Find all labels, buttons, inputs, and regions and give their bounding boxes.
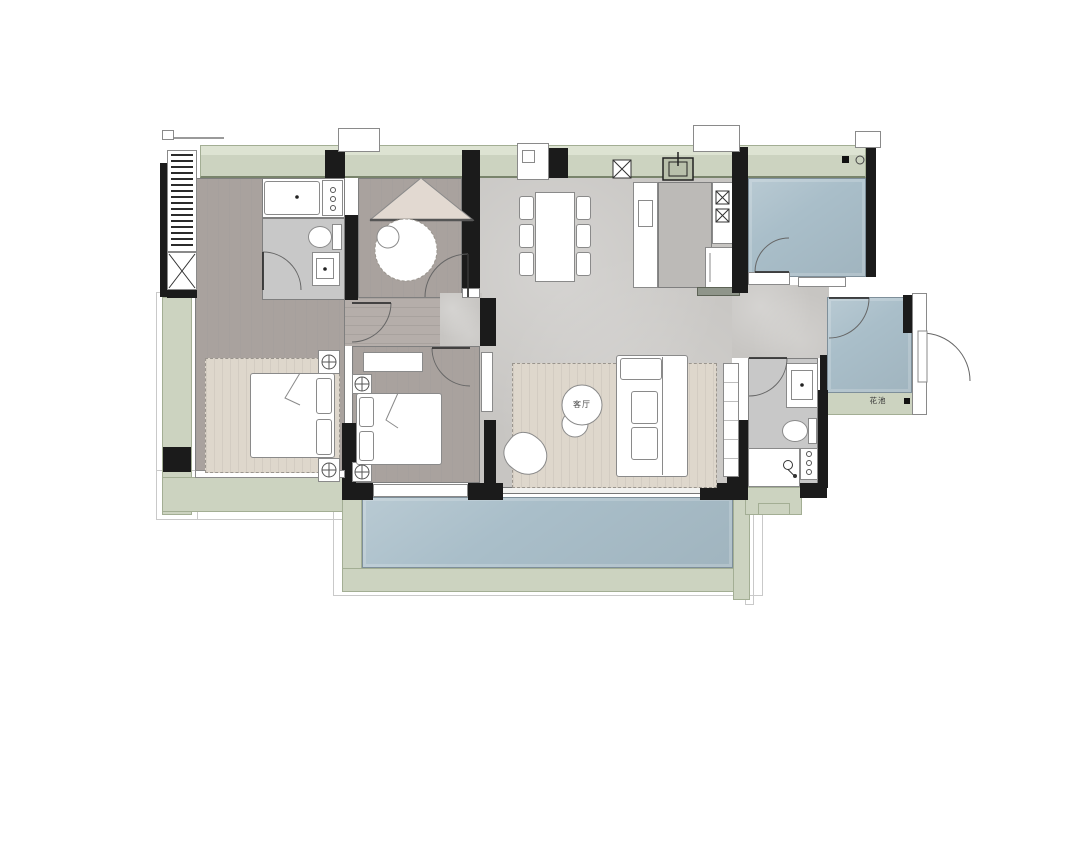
tent-icon — [370, 178, 473, 220]
stove-burner-icon — [716, 191, 729, 222]
faucet-dot-icon — [295, 195, 804, 387]
coffee-table — [562, 385, 602, 437]
kitchen-sink-icon — [663, 152, 693, 180]
round-rug — [375, 219, 437, 281]
bed-fold-line — [285, 373, 398, 428]
plan-symbols — [0, 0, 1080, 866]
flower-bed-label: 花池 — [862, 396, 894, 406]
shower-head-icon — [784, 461, 797, 478]
table-lamp-icon — [322, 355, 369, 479]
entry-door — [918, 331, 927, 382]
washer-valve-icon — [842, 156, 910, 404]
door-swing-arc — [263, 238, 970, 396]
floor-plan: 客厅 花池 — [0, 0, 1080, 866]
living-room-label: 客厅 — [568, 400, 596, 410]
